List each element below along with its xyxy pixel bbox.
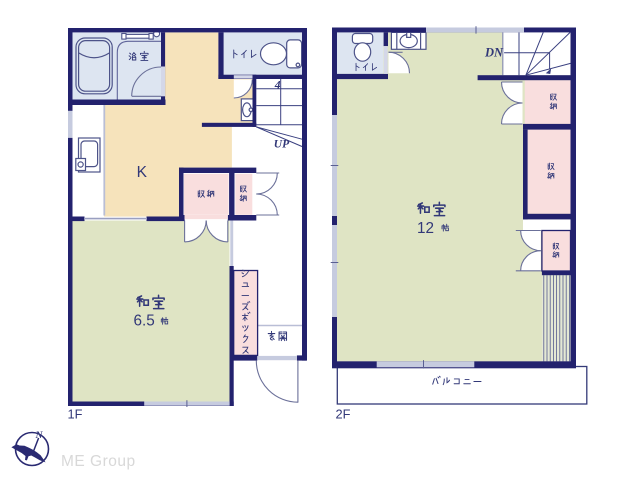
svg-text:UP: UP <box>274 138 290 150</box>
svg-text:12: 12 <box>417 220 434 237</box>
svg-text:DN: DN <box>484 46 504 60</box>
svg-text:4: 4 <box>274 79 281 91</box>
svg-text:1F: 1F <box>68 407 83 422</box>
svg-text:N: N <box>35 431 44 441</box>
svg-text:K: K <box>137 164 148 181</box>
svg-text:6.5: 6.5 <box>134 313 155 330</box>
svg-text:2F: 2F <box>336 406 351 421</box>
svg-text:ME Group: ME Group <box>61 453 136 470</box>
